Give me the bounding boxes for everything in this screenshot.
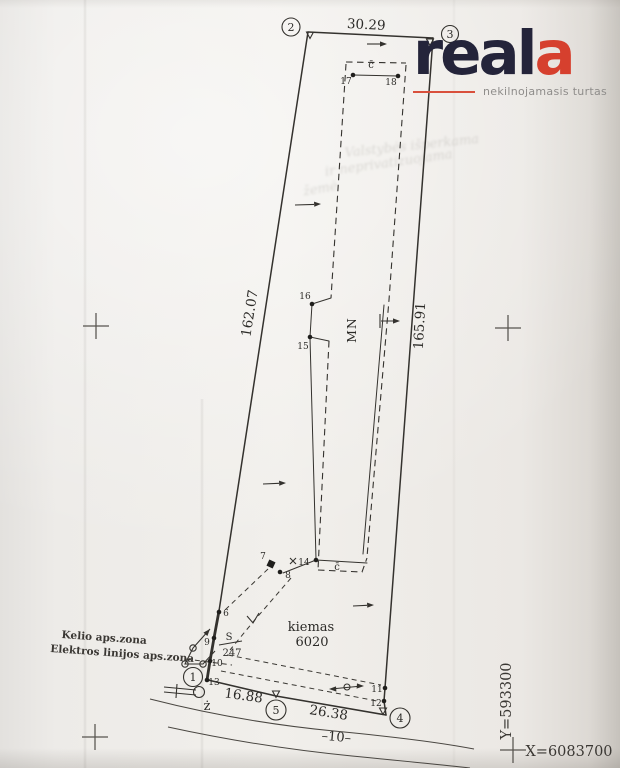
logo-rule xyxy=(413,91,475,93)
point-label-6: 6 xyxy=(223,609,229,619)
coordinate-y-label: Y=593300 xyxy=(499,662,515,740)
measurement-bottom-left: 16.88 xyxy=(223,685,264,706)
zone-label-power: Elektros linijos aps.zona xyxy=(50,643,195,665)
c-bar-label-bottom: c̄ xyxy=(334,562,340,573)
point-label-18: 18 xyxy=(385,78,397,88)
area-fraction: S 247 xyxy=(219,632,242,659)
fraction-denominator: 247 xyxy=(222,648,241,659)
point-label-14: 14 xyxy=(298,558,310,568)
fraction-numerator: S xyxy=(226,632,233,643)
point-label-15: 15 xyxy=(297,342,309,352)
coordinate-x-label: X=6083700 xyxy=(525,744,612,760)
direction-arrows xyxy=(263,41,400,607)
z-mark: ż xyxy=(204,699,211,714)
double-arrow xyxy=(329,683,364,691)
parcel-number: 6020 xyxy=(295,635,328,650)
logo-wordmark: reala xyxy=(413,24,613,84)
measurement-right: 165.91 xyxy=(411,302,429,350)
point-label-11: 11 xyxy=(371,685,382,695)
well-symbol xyxy=(194,687,205,698)
grid-cross-marks xyxy=(82,313,526,763)
measurement-top: 30.29 xyxy=(346,16,385,34)
logo-wordmark-main: real xyxy=(413,18,535,89)
road-width-label: –10– xyxy=(321,729,352,747)
point-label-12: 12 xyxy=(370,699,381,709)
point-labels: 17 18 16 15 14 7 8 6 9 10 13 11 12 xyxy=(204,77,397,709)
vertex-5-label: 5 xyxy=(273,704,280,717)
inner-parcel-boundary xyxy=(310,62,406,572)
vertex-4-label: 4 xyxy=(397,712,404,725)
vertex-1-label: 1 xyxy=(190,671,197,684)
boundary-point-dots xyxy=(205,73,401,704)
point-label-7: 7 xyxy=(260,552,266,562)
point-label-10: 10 xyxy=(211,659,223,669)
point-label-13: 13 xyxy=(208,678,220,688)
logo-wordmark-accent: a xyxy=(535,18,573,89)
parcel-use-label: kiemas xyxy=(288,620,334,635)
corner-ticks xyxy=(273,32,434,715)
point-label-17: 17 xyxy=(340,77,352,87)
measurement-left: 162.07 xyxy=(238,289,261,338)
vertex1-detail xyxy=(164,684,205,698)
measurement-labels: 30.29 162.07 165.91 16.88 26.38 xyxy=(223,16,429,724)
main-boundary xyxy=(207,32,433,715)
building-symbol xyxy=(266,559,275,568)
north-label: MN xyxy=(344,317,359,343)
vertex-2-label: 2 xyxy=(288,21,295,34)
point-label-9: 9 xyxy=(204,638,210,648)
c-bar-label-top: c̄ xyxy=(368,60,374,71)
point-label-8: 8 xyxy=(285,571,291,581)
measurement-bottom-right: 26.38 xyxy=(308,702,349,724)
logo-tagline: nekilnojamasis turtas xyxy=(483,85,607,98)
reala-logo: reala nekilnojamasis turtas xyxy=(413,24,613,98)
scanned-cadastral-plan: Valstybės išperkama ir neprivatizuojama … xyxy=(0,0,620,768)
point-label-16: 16 xyxy=(299,292,311,302)
x-mark xyxy=(290,558,296,564)
survey-drawing: 2 3 1 5 4 17 18 16 15 14 7 8 6 9 10 13 1… xyxy=(0,0,620,768)
